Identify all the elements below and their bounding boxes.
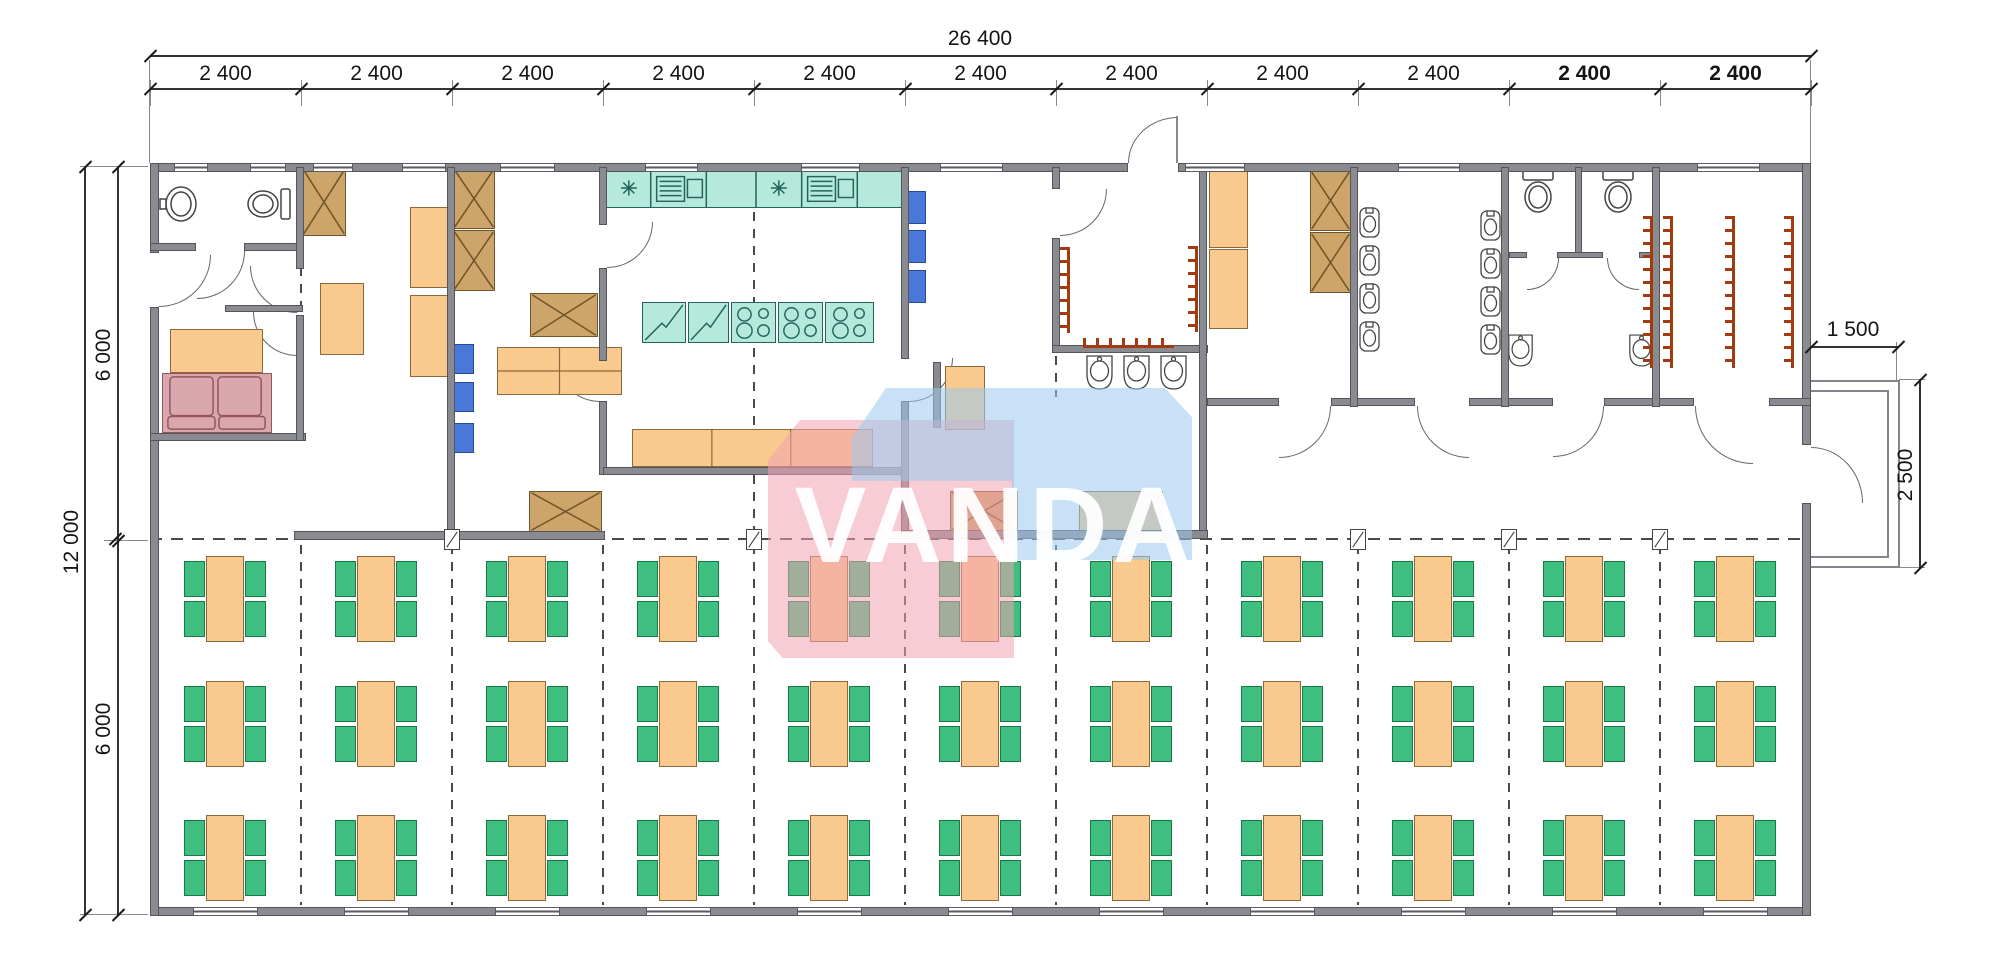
dimension-line <box>84 167 86 915</box>
wall <box>1652 167 1660 407</box>
chair <box>1453 860 1474 896</box>
shelf-unit <box>906 191 926 224</box>
chair <box>637 820 658 856</box>
chair <box>1151 726 1172 762</box>
stove <box>731 302 776 343</box>
dining-table <box>1263 815 1301 901</box>
window <box>1099 907 1164 916</box>
dining-table <box>206 681 244 767</box>
dining-table <box>1112 815 1150 901</box>
chair <box>1604 601 1625 637</box>
dining-table <box>508 681 546 767</box>
chair <box>486 686 507 722</box>
chair <box>1151 820 1172 856</box>
chair <box>335 820 356 856</box>
chair <box>335 860 356 896</box>
grid-dashline <box>1206 545 1208 905</box>
chair <box>1302 561 1323 597</box>
grid-dashline <box>1659 545 1661 905</box>
chair <box>1302 686 1323 722</box>
chair <box>547 561 568 597</box>
chair <box>1392 860 1413 896</box>
chair <box>849 561 870 597</box>
extension-line <box>1810 60 1811 163</box>
chair <box>1694 561 1715 597</box>
extension-line <box>1176 116 1178 163</box>
chair <box>1151 686 1172 722</box>
wardrobe-cabinet <box>453 168 495 229</box>
chair <box>1453 726 1474 762</box>
dining-table <box>1565 815 1603 901</box>
chair <box>396 601 417 637</box>
chair <box>1090 860 1111 896</box>
wash-basin-icon <box>1506 333 1535 368</box>
chair <box>1755 686 1776 722</box>
chair <box>245 561 266 597</box>
wall <box>901 401 909 538</box>
dining-table <box>1414 815 1452 901</box>
window <box>940 163 1003 172</box>
window <box>1401 907 1466 916</box>
wall <box>225 305 303 312</box>
chair <box>788 860 809 896</box>
chair <box>1000 686 1021 722</box>
window <box>313 163 353 172</box>
dining-table <box>357 556 395 642</box>
shelf-unit <box>906 270 926 303</box>
chair <box>1694 820 1715 856</box>
chair <box>1543 726 1564 762</box>
wall <box>296 167 304 269</box>
chair <box>1000 860 1021 896</box>
cabinet <box>1079 491 1163 531</box>
grid-node <box>1350 529 1366 550</box>
dining-table <box>1263 681 1301 767</box>
chair <box>335 601 356 637</box>
wardrobe-cabinet <box>529 491 602 532</box>
toilet-icon <box>1517 168 1559 215</box>
extension-line <box>1811 80 1812 106</box>
extension-line <box>603 80 604 106</box>
chair <box>335 726 356 762</box>
wall <box>1769 398 1811 406</box>
chair <box>939 860 960 896</box>
coat-rack <box>1060 247 1070 333</box>
extension-line <box>1358 80 1359 106</box>
chair <box>335 561 356 597</box>
chair <box>547 860 568 896</box>
urinal-icon <box>1480 324 1501 355</box>
chair <box>1543 561 1564 597</box>
chair <box>939 601 960 637</box>
chair <box>788 686 809 722</box>
wall <box>599 167 607 225</box>
cabinet <box>945 366 985 430</box>
chair <box>1090 686 1111 722</box>
window <box>801 163 860 172</box>
chair <box>1604 561 1625 597</box>
coat-rack <box>1188 246 1198 332</box>
grid-node <box>444 529 460 550</box>
window <box>500 163 555 172</box>
window <box>1398 163 1460 172</box>
wall <box>150 433 306 441</box>
floor-plan-canvas: 26 400 12 000 1 500 2 500 VANDA 2 4002 4… <box>0 0 2000 975</box>
chair <box>547 601 568 637</box>
wardrobe-cabinet <box>530 293 598 337</box>
module-dim-label: 2 400 <box>1384 62 1484 86</box>
extension-line <box>80 914 148 915</box>
chair <box>1543 860 1564 896</box>
wall <box>1331 398 1415 406</box>
dining-table <box>206 556 244 642</box>
chair <box>698 686 719 722</box>
chair <box>1755 820 1776 856</box>
chair <box>1090 820 1111 856</box>
grid-dashline <box>602 545 604 905</box>
chair <box>1453 601 1474 637</box>
dining-table <box>1414 556 1452 642</box>
wall <box>1052 167 1060 189</box>
dining-table <box>357 681 395 767</box>
chair <box>1000 726 1021 762</box>
urinal-icon <box>1359 207 1380 238</box>
chair <box>788 820 809 856</box>
toilet-icon <box>243 186 293 222</box>
chair <box>1392 820 1413 856</box>
wardrobe-cabinet <box>1310 170 1351 231</box>
cabinet <box>320 283 364 355</box>
wall <box>1350 167 1358 407</box>
chair <box>849 820 870 856</box>
chair <box>245 860 266 896</box>
chair <box>547 686 568 722</box>
dim-total-width: 26 400 <box>930 27 1030 51</box>
door-arc <box>1553 406 1604 457</box>
window <box>174 163 208 172</box>
chair <box>1151 601 1172 637</box>
dimension-line <box>150 55 1811 57</box>
stove <box>825 302 874 343</box>
coat-rack <box>1083 338 1174 348</box>
dining-table <box>961 815 999 901</box>
chair <box>1151 860 1172 896</box>
chair <box>939 820 960 856</box>
grid-dashline <box>904 545 906 905</box>
chair <box>486 820 507 856</box>
fridge <box>688 302 729 343</box>
window <box>402 163 446 172</box>
extension-line <box>1509 80 1510 106</box>
chair <box>1604 860 1625 896</box>
dining-table <box>508 556 546 642</box>
chair <box>939 561 960 597</box>
chair <box>1543 820 1564 856</box>
wash-sink-icon <box>158 183 200 225</box>
chair <box>547 726 568 762</box>
chair <box>1392 561 1413 597</box>
door-arc <box>1527 258 1559 290</box>
chair <box>637 561 658 597</box>
dining-table <box>1112 681 1150 767</box>
chair <box>637 726 658 762</box>
chair <box>184 601 205 637</box>
dining-table <box>810 815 848 901</box>
chair <box>849 860 870 896</box>
dining-table <box>357 815 395 901</box>
coat-rack <box>1725 216 1735 368</box>
chair <box>1755 561 1776 597</box>
door-arc <box>1128 117 1178 163</box>
chair <box>245 726 266 762</box>
wall <box>1604 398 1694 406</box>
grid-dashline <box>1055 545 1057 905</box>
shelf-unit <box>906 230 926 263</box>
chair <box>939 686 960 722</box>
extension-line <box>1207 80 1208 106</box>
window <box>1250 907 1315 916</box>
wall <box>901 167 909 359</box>
door-arc <box>607 222 653 268</box>
chair <box>1000 601 1021 637</box>
chair <box>1755 601 1776 637</box>
chair <box>1453 561 1474 597</box>
chair <box>1543 601 1564 637</box>
chair <box>637 601 658 637</box>
chair <box>1694 726 1715 762</box>
module-dim-label: 2 400 <box>1535 62 1635 86</box>
fridge <box>642 302 686 343</box>
wardrobe-cabinet <box>1310 232 1351 293</box>
stove <box>778 302 823 343</box>
wardrobe-cabinet <box>453 230 495 291</box>
chair <box>1543 686 1564 722</box>
grid-dashline <box>1357 545 1359 905</box>
grid-node <box>1501 529 1517 550</box>
chair <box>184 561 205 597</box>
window <box>646 907 711 916</box>
grid-node <box>746 529 762 550</box>
door-arc <box>1060 189 1107 236</box>
dim-left-total: 12 000 <box>60 492 84 592</box>
dining-table <box>1716 681 1754 767</box>
wall <box>901 530 1208 539</box>
grid-dashline <box>1055 356 1057 397</box>
coat-rack <box>1784 216 1794 368</box>
shelf-unit <box>452 382 474 412</box>
extension-line <box>1056 80 1057 106</box>
dim-porch-width: 1 500 <box>1803 318 1903 342</box>
chair <box>788 561 809 597</box>
window <box>645 163 698 172</box>
grid-dashline <box>451 545 453 905</box>
window <box>1552 907 1617 916</box>
dimension-line <box>150 88 1811 90</box>
chair <box>788 726 809 762</box>
cabinet <box>170 329 263 373</box>
window <box>797 907 862 916</box>
extension-line <box>149 60 150 163</box>
chair <box>1453 820 1474 856</box>
extension-line <box>452 80 453 106</box>
coat-rack <box>1663 216 1673 368</box>
chair <box>637 686 658 722</box>
chair <box>486 601 507 637</box>
chair <box>1000 561 1021 597</box>
grid-dashline <box>753 545 755 905</box>
dining-table <box>1414 681 1452 767</box>
chair <box>1090 726 1111 762</box>
chair <box>547 820 568 856</box>
chair <box>1000 820 1021 856</box>
wall <box>1501 167 1509 407</box>
chair <box>1241 686 1262 722</box>
chair <box>1241 820 1262 856</box>
module-dim-label: 2 400 <box>1082 62 1182 86</box>
chair <box>1392 726 1413 762</box>
toilet-icon <box>1597 168 1639 215</box>
chair <box>1604 726 1625 762</box>
chair <box>1392 686 1413 722</box>
chair <box>1090 601 1111 637</box>
chair <box>184 820 205 856</box>
kitchen-counter <box>606 168 902 208</box>
window <box>495 907 560 916</box>
module-dim-label: 2 400 <box>327 62 427 86</box>
dining-table <box>1263 556 1301 642</box>
window <box>1185 163 1245 172</box>
dining-table <box>810 681 848 767</box>
wardrobe-cabinet <box>302 168 346 236</box>
dining-table <box>1112 556 1150 642</box>
window <box>250 163 286 172</box>
grid-dashline <box>300 545 302 905</box>
chair <box>698 561 719 597</box>
cabinet <box>410 207 449 288</box>
dining-table <box>961 681 999 767</box>
module-dim-label: 2 400 <box>780 62 880 86</box>
module-dim-label: 2 400 <box>931 62 1031 86</box>
chair <box>1151 561 1172 597</box>
chair <box>486 860 507 896</box>
wall <box>1802 503 1811 916</box>
chair <box>1694 686 1715 722</box>
chair <box>698 601 719 637</box>
dim-left-half: 6 000 <box>92 305 116 405</box>
chair <box>245 686 266 722</box>
module-dim-label: 2 400 <box>1686 62 1786 86</box>
wash-basin-icon <box>1158 354 1189 391</box>
chair <box>1090 561 1111 597</box>
chair <box>396 820 417 856</box>
chair <box>698 860 719 896</box>
module-dim-label: 2 400 <box>629 62 729 86</box>
chair <box>245 820 266 856</box>
window <box>1703 907 1768 916</box>
chair <box>396 726 417 762</box>
chair <box>939 726 960 762</box>
dining-table <box>659 681 697 767</box>
chair <box>698 726 719 762</box>
chair <box>486 726 507 762</box>
chair <box>788 601 809 637</box>
chair <box>335 686 356 722</box>
chair <box>1241 726 1262 762</box>
wall <box>150 307 159 916</box>
wall <box>447 167 455 539</box>
module-dim-label: 2 400 <box>1233 62 1333 86</box>
chair <box>486 561 507 597</box>
dining-table <box>659 556 697 642</box>
chair <box>1694 601 1715 637</box>
dining-table <box>1716 815 1754 901</box>
urinal-icon <box>1359 321 1380 352</box>
shelf-unit <box>452 344 474 374</box>
dim-left-half: 6 000 <box>92 679 116 779</box>
chair <box>1302 860 1323 896</box>
dimension-line <box>1919 380 1921 568</box>
extension-line <box>150 80 151 106</box>
chair <box>184 726 205 762</box>
door-arc <box>1607 258 1639 290</box>
wall <box>599 268 607 361</box>
extension-line <box>80 166 148 167</box>
wall <box>244 243 301 251</box>
chair <box>1755 860 1776 896</box>
grid-dashline <box>1508 545 1510 905</box>
chair <box>396 561 417 597</box>
module-dim-label: 2 400 <box>176 62 276 86</box>
urinal-icon <box>1480 286 1501 317</box>
wall <box>603 467 906 475</box>
wall <box>1557 252 1603 258</box>
chair <box>698 820 719 856</box>
chair <box>1302 820 1323 856</box>
wall <box>1509 252 1527 258</box>
door-arc <box>159 255 211 307</box>
wall <box>150 243 196 251</box>
chair <box>849 601 870 637</box>
cabinet <box>1209 249 1248 329</box>
extension-line <box>301 80 302 106</box>
window <box>1697 163 1760 172</box>
module-dim-label: 2 400 <box>478 62 578 86</box>
dim-porch-depth: 2 500 <box>1894 425 1918 525</box>
sofa <box>162 373 272 433</box>
urinal-icon <box>1480 210 1501 241</box>
wall <box>1207 398 1279 406</box>
wall <box>933 362 941 428</box>
dining-table <box>810 556 848 642</box>
dining-table <box>659 815 697 901</box>
coat-rack <box>1643 216 1653 368</box>
extension-line <box>1660 80 1661 106</box>
wall <box>1469 398 1553 406</box>
extension-line <box>905 80 906 106</box>
wall <box>599 401 607 475</box>
window <box>344 907 409 916</box>
chair <box>1302 601 1323 637</box>
chair <box>1604 686 1625 722</box>
wall <box>1199 167 1207 539</box>
chair <box>849 726 870 762</box>
chair <box>1241 601 1262 637</box>
dining-table <box>961 556 999 642</box>
wardrobe-cabinet <box>950 491 1018 531</box>
chair <box>184 686 205 722</box>
serving-counter <box>632 429 873 467</box>
cabinet <box>1209 168 1248 248</box>
